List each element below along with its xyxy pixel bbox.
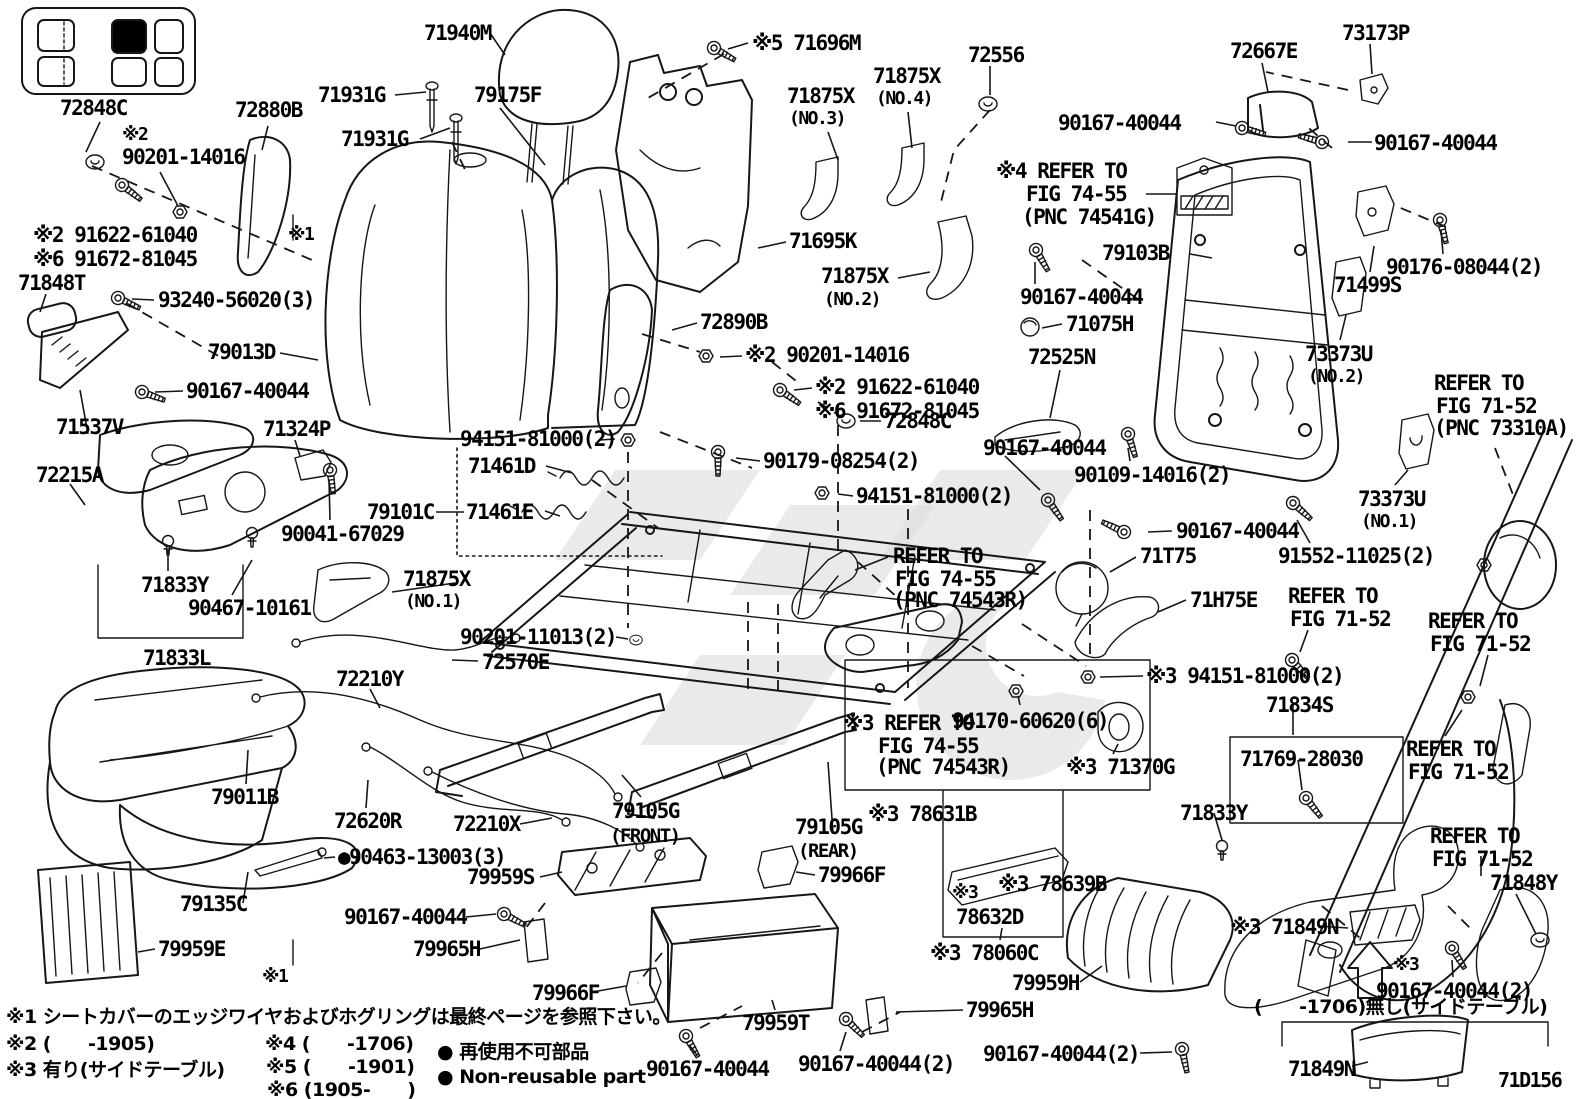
part-label-71769-28030: 71769-28030 — [1240, 748, 1363, 770]
part-label-90167-40044: 90167-40044 — [983, 437, 1106, 459]
part-label-94151-81000-2: 94151-81000(2) — [460, 428, 616, 450]
part-label-fig-71-52: FIG 71-52 — [1432, 848, 1532, 870]
part-label-3-78639b: ※3 78639B — [998, 873, 1106, 895]
part-label-2: ※2 — [122, 126, 147, 145]
part-label-90201-11013-2: 90201-11013(2) — [460, 626, 616, 648]
part-label-72848c: 72848C — [60, 97, 127, 119]
part-label-72556: 72556 — [968, 44, 1024, 66]
part-label-fig-74-55: FIG 74-55 — [895, 568, 995, 590]
part-label-90167-40044: 90167-40044 — [1058, 112, 1181, 134]
part-label-3-94151-81000-2: ※3 94151-81000(2) — [1146, 665, 1343, 687]
part-label-no-2: (NO.2) — [824, 291, 880, 310]
part-label-1: ※1 — [288, 226, 313, 245]
part-label-no-1: (NO.1) — [405, 593, 461, 612]
part-label-6-91672-81045: ※6 91672-81045 — [33, 248, 197, 270]
part-label-79135c: 79135C — [180, 893, 247, 915]
part-label-79101c: 79101C — [367, 501, 434, 523]
part-label-72667e: 72667E — [1230, 40, 1297, 62]
part-label-no-2: (NO.2) — [1308, 368, 1364, 387]
part-label-4-1706: ※4 ( -1706) — [265, 1035, 413, 1055]
part-label-3: ※3 有り(サイドテーブル) — [6, 1061, 225, 1081]
part-label-79105g: 79105G — [612, 800, 679, 822]
part-label-93240-56020-3: 93240-56020(3) — [158, 289, 314, 311]
part-label-90041-67029: 90041-67029 — [281, 523, 404, 545]
part-label-6-1905: ※6 (1905- ) — [267, 1081, 415, 1099]
part-label-71d156: 71D156 — [1498, 1070, 1561, 1091]
part-label-1: ※1 シートカバーのエッジワイヤおよびホグリングは最終ページを参照下さい。 — [6, 1008, 671, 1028]
part-label-90167-40044: 90167-40044 — [646, 1058, 769, 1080]
part-label-90167-40044: 90167-40044 — [1176, 520, 1299, 542]
part-label-5-1901: ※5 ( -1901) — [266, 1058, 414, 1078]
part-label-pnc-73310a: (PNC 73310A) — [1434, 417, 1568, 439]
part-label-79959t: 79959T — [742, 1012, 809, 1034]
part-label-90167-40044-2: 90167-40044(2) — [798, 1053, 954, 1075]
part-label-no-1: (NO.1) — [1361, 513, 1417, 532]
part-label-3: ※3 — [952, 884, 977, 903]
part-label-refer-to: REFER TO — [1430, 825, 1519, 847]
part-label-refer-to: REFER TO — [1434, 372, 1523, 394]
part-label-71940m: 71940M — [424, 22, 491, 44]
part-label-91552-11025-2: 91552-11025(2) — [1278, 545, 1434, 567]
part-label-73373u: 73373U — [1305, 343, 1372, 365]
part-label-fig-71-52: FIG 71-52 — [1408, 761, 1508, 783]
part-label-94170-60620-6: 94170-60620(6) — [952, 710, 1108, 732]
part-label-72210y: 72210Y — [336, 668, 403, 690]
part-label-71324p: 71324P — [263, 418, 330, 440]
part-label-79011b: 79011B — [211, 786, 278, 808]
part-label-94151-81000-2: 94151-81000(2) — [856, 485, 1012, 507]
part-label-71537v: 71537V — [56, 416, 123, 438]
part-label-79103b: 79103B — [1102, 242, 1169, 264]
part-label-71695k: 71695K — [789, 230, 856, 252]
part-label-71833y: 71833Y — [141, 574, 208, 596]
part-label-90167-40044: 90167-40044 — [1020, 286, 1143, 308]
part-label-71848y: 71848Y — [1490, 872, 1557, 894]
part-label-2-91622-61040: ※2 91622-61040 — [33, 224, 197, 246]
part-label-90167-40044-2: 90167-40044(2) — [983, 1043, 1139, 1065]
part-label-72215a: 72215A — [36, 464, 103, 486]
part-label-90167-40044: 90167-40044 — [1374, 132, 1497, 154]
part-label-refer-to: REFER TO — [1288, 585, 1377, 607]
part-label-pnc-74543r: (PNC 74543R) — [876, 756, 1010, 778]
part-label-rear: (REAR) — [798, 842, 858, 862]
part-label-71931g: 71931G — [341, 128, 408, 150]
part-label-refer-to: REFER TO — [1428, 610, 1517, 632]
part-label-3: ※3 — [1393, 956, 1418, 975]
part-label-79966f: 79966F — [532, 982, 599, 1004]
part-label-72525n: 72525N — [1028, 346, 1095, 368]
part-label-90179-08254-2: 90179-08254(2) — [763, 450, 919, 472]
part-label-79959e: 79959E — [158, 938, 225, 960]
part-label-73173p: 73173P — [1342, 22, 1409, 44]
part-label-71499s: 71499S — [1334, 274, 1401, 296]
part-label-79175f: 79175F — [474, 84, 541, 106]
part-label-fig-71-52: FIG 71-52 — [1436, 395, 1536, 417]
part-label-no-4: (NO.4) — [876, 90, 932, 109]
part-label-no-3: (NO.3) — [789, 110, 845, 129]
part-label-refer-to: REFER TO — [893, 545, 982, 567]
part-label-fig-74-55: FIG 74-55 — [1026, 183, 1126, 205]
part-label-71875x: 71875X — [821, 265, 888, 287]
part-label-71875x: 71875X — [873, 65, 940, 87]
part-label-: ● 再使用不可部品 — [437, 1043, 589, 1063]
part-label-71848t: 71848T — [18, 272, 85, 294]
part-label-5-71696m: ※5 71696M — [752, 32, 860, 54]
part-label-79013d: 79013D — [208, 341, 275, 363]
part-label-3-78631b: ※3 78631B — [868, 803, 976, 825]
part-label-90201-14016: 90201-14016 — [122, 146, 245, 168]
part-label-refer-to: REFER TO — [1406, 738, 1495, 760]
part-label-fig-71-52: FIG 71-52 — [1430, 633, 1530, 655]
part-label-71075h: 71075H — [1066, 313, 1133, 335]
part-label-71833l: 71833L — [143, 647, 210, 669]
part-label-4-refer-to: ※4 REFER TO — [996, 160, 1126, 182]
part-label-fig-74-55: FIG 74-55 — [878, 735, 978, 757]
part-label-71834s: 71834S — [1266, 694, 1333, 716]
part-label-71875x: 71875X — [403, 568, 470, 590]
part-label-72210x: 72210X — [453, 813, 520, 835]
part-label-79965h: 79965H — [966, 999, 1033, 1021]
part-label-71875x: 71875X — [787, 85, 854, 107]
part-label-72570e: 72570E — [482, 651, 549, 673]
part-label-72620r: 72620R — [334, 810, 401, 832]
part-label-3-71849n: ※3 71849N — [1230, 916, 1338, 938]
part-label-pnc-74541g: (PNC 74541G) — [1022, 206, 1156, 228]
part-label-2-91622-61040: ※2 91622-61040 — [815, 376, 979, 398]
part-label-79966f: 79966F — [818, 864, 885, 886]
part-label-71461d: 71461D — [468, 455, 535, 477]
part-label-71h75e: 71H75E — [1190, 589, 1257, 611]
part-label-1706: ( -1706)無し(サイドテーブル) — [1254, 998, 1547, 1018]
part-label-71t75: 71T75 — [1140, 545, 1196, 567]
part-label-90109-14016-2: 90109-14016(2) — [1074, 464, 1230, 486]
labels-layer: 72848C※290201-1401672880B71931G71931G791… — [0, 0, 1592, 1099]
part-label-2-1905: ※2 ( -1905) — [6, 1035, 154, 1055]
part-label-79965h: 79965H — [413, 938, 480, 960]
part-label-71931g: 71931G — [318, 84, 385, 106]
part-label-79959s: 79959S — [467, 866, 534, 888]
part-label-3-78060c: ※3 78060C — [930, 942, 1038, 964]
part-label-90176-08044-2: 90176-08044(2) — [1386, 256, 1542, 278]
part-label-1: ※1 — [262, 968, 287, 987]
part-label-fig-71-52: FIG 71-52 — [1290, 608, 1390, 630]
part-label-pnc-74543r: (PNC 74543R) — [893, 589, 1027, 611]
part-label-non-reusable-part: ● Non-reusable part — [437, 1068, 645, 1088]
part-label-79959h: 79959H — [1012, 972, 1079, 994]
part-label-90167-40044: 90167-40044 — [186, 380, 309, 402]
part-label-90467-10161: 90467-10161 — [188, 597, 311, 619]
part-label-72890b: 72890B — [700, 311, 767, 333]
part-label-71833y: 71833Y — [1180, 802, 1247, 824]
part-label-2-90201-14016: ※2 90201-14016 — [745, 344, 909, 366]
part-label-front: (FRONT) — [610, 827, 680, 847]
parts-diagram-canvas: 72848C※290201-1401672880B71931G71931G791… — [0, 0, 1592, 1099]
part-label-78632d: 78632D — [956, 906, 1023, 928]
part-label-72848c: 72848C — [884, 410, 951, 432]
part-label-73373u: 73373U — [1358, 488, 1425, 510]
part-label-71849n: 71849N — [1288, 1058, 1355, 1080]
part-label-71461e: 71461E — [466, 501, 533, 523]
part-label-3-refer-to: ※3 REFER TO — [843, 712, 973, 734]
part-label-3-71370g: ※3 71370G — [1066, 756, 1174, 778]
part-label-72880b: 72880B — [235, 99, 302, 121]
part-label-79105g: 79105G — [795, 816, 862, 838]
part-label-90167-40044: 90167-40044 — [344, 906, 467, 928]
